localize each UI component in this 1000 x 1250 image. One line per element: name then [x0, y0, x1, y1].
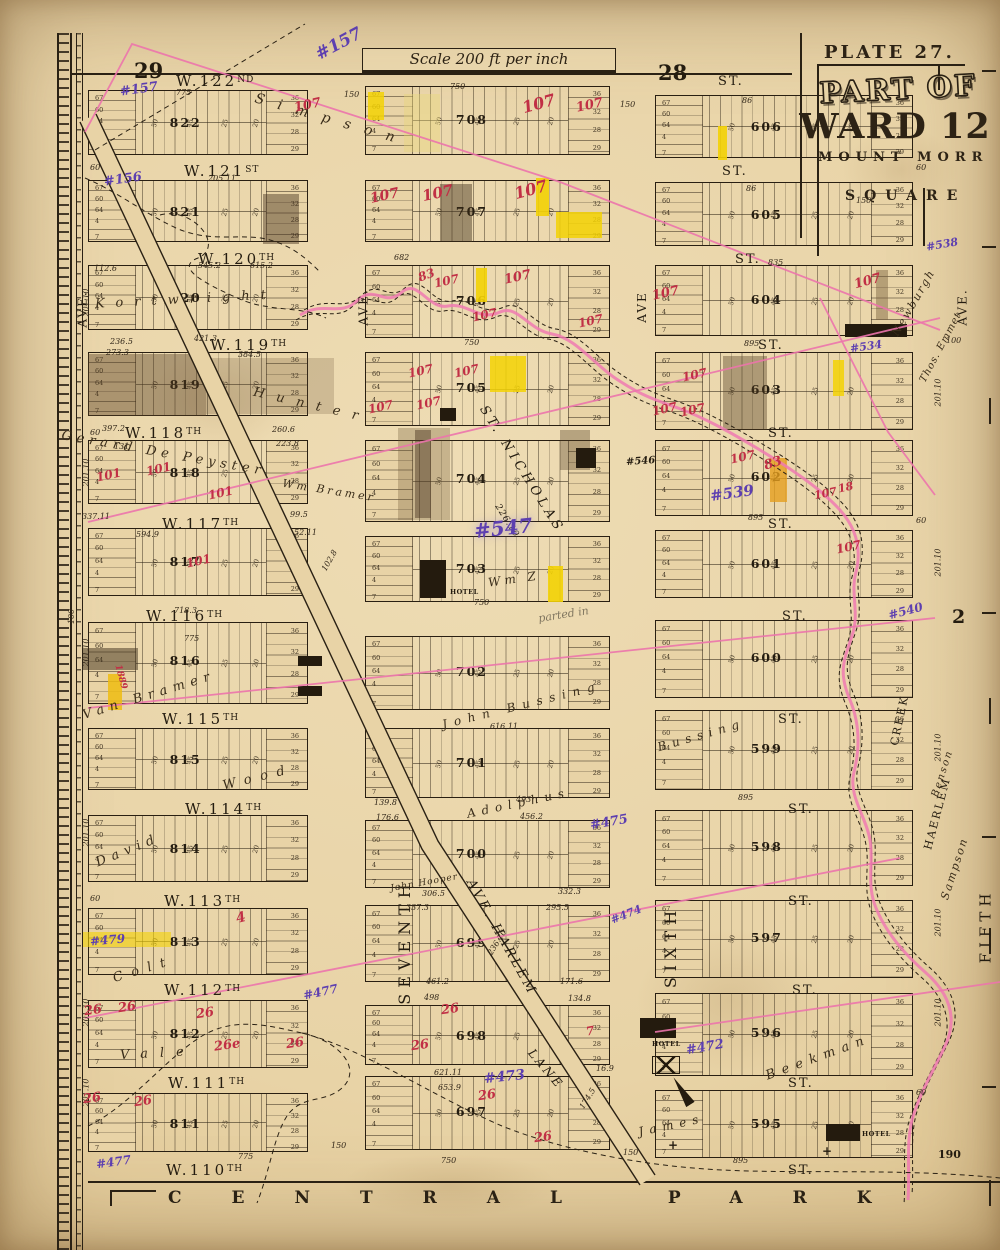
- lot-number: 64: [662, 654, 670, 661]
- smudge-patch: [723, 356, 767, 430]
- lot-number: 60: [662, 459, 670, 466]
- street-suffix: TH: [229, 1077, 245, 1087]
- block-number: 811: [170, 1116, 202, 1131]
- lot-number: 60: [372, 746, 380, 753]
- title-square: SQUARE: [845, 188, 966, 204]
- lot-number: 28: [896, 757, 904, 764]
- lot-number: 7: [372, 594, 376, 601]
- smudge-patch: [263, 194, 299, 244]
- lot-number: 67: [95, 185, 103, 192]
- paper-stain: [300, 1140, 600, 1230]
- measurement-label: 150: [331, 1141, 346, 1150]
- lot-number: 25: [221, 1119, 229, 1129]
- lot-number: 64: [662, 843, 670, 850]
- lot-number: 32: [593, 377, 601, 384]
- measurement-label: 139.8: [374, 798, 397, 807]
- lot-number: 64: [662, 122, 670, 129]
- lot-number: 29: [291, 872, 299, 879]
- lot-number: 67: [662, 716, 670, 723]
- lot-number: 29: [896, 505, 904, 512]
- measurement-label: 223.8: [276, 439, 299, 448]
- lot-number: 20: [547, 476, 555, 486]
- lot-number: 67: [662, 270, 670, 277]
- lot-number: 28: [291, 304, 299, 311]
- city-block: 603676064473632282950452520: [655, 352, 913, 430]
- lot-number: 29: [896, 967, 904, 974]
- annotation-purple: #157: [312, 23, 365, 64]
- lot-number: 29: [593, 1056, 601, 1063]
- smudge-patch: [88, 354, 206, 416]
- lot-number: 4: [662, 572, 666, 579]
- measurement-label: 150: [344, 90, 359, 99]
- lot-number: 64: [372, 1031, 380, 1038]
- measurement-label: 384.5: [238, 350, 261, 359]
- measurement-label: 615.2: [250, 261, 273, 270]
- highlight-patch: [368, 92, 384, 120]
- building-footprint: [420, 560, 446, 598]
- lot-number: 28: [896, 220, 904, 227]
- lot-number: 7: [372, 972, 376, 979]
- central-park-label: CENTRAL PARK: [168, 1188, 922, 1208]
- block-number: 814: [170, 841, 202, 856]
- annotation-purple: #474: [609, 902, 644, 926]
- lot-number: 60: [372, 284, 380, 291]
- street-suffix: TH: [225, 984, 241, 994]
- lot-number: 64: [372, 207, 380, 214]
- lot-number: 28: [291, 671, 299, 678]
- lot-number: 7: [662, 780, 666, 787]
- annotation-red: 26: [82, 1090, 102, 1107]
- block-number: 598: [751, 839, 783, 854]
- lot-number: 67: [372, 1081, 380, 1088]
- lot-number: 67: [95, 733, 103, 740]
- lot-number: 29: [593, 878, 601, 885]
- measurement-label: 60: [916, 1088, 926, 1097]
- lot-number: 20: [252, 755, 260, 765]
- lot-number: 32: [593, 931, 601, 938]
- lot-number: 25: [513, 116, 521, 126]
- lot-number: 25: [513, 207, 521, 217]
- lot-number: 50: [728, 844, 736, 854]
- lot-number: 28: [896, 855, 904, 862]
- lot-number: 64: [95, 1119, 103, 1126]
- annotation-red: 26: [440, 1001, 460, 1018]
- lot-number: 25: [221, 658, 229, 668]
- measurement-label: 682: [394, 253, 409, 262]
- lot-number: 36: [593, 1081, 601, 1088]
- lot-number: 64: [372, 297, 380, 304]
- lot-number: 36: [896, 446, 904, 453]
- lot-number: 29: [593, 415, 601, 422]
- block-number: 813: [170, 934, 202, 949]
- lot-number: 36: [896, 626, 904, 633]
- lot-number: 29: [896, 687, 904, 694]
- lot-number: 32: [593, 201, 601, 208]
- lot-number: 67: [95, 95, 103, 102]
- measurement-label: 171.6: [560, 977, 583, 986]
- highlight-patch: [833, 360, 844, 396]
- lot-number: 20: [547, 939, 555, 949]
- lot-number: 32: [291, 1113, 299, 1120]
- lot-number: 28: [593, 489, 601, 496]
- city-block: 706676064473632282950452520: [365, 265, 610, 338]
- lot-number: 50: [728, 123, 736, 133]
- lot-number: 7: [95, 147, 99, 154]
- measurement-label: 653.9: [438, 1083, 461, 1092]
- lot-number: 67: [662, 626, 670, 633]
- lot-number: 4: [372, 1121, 376, 1128]
- lot-number: 20: [547, 669, 555, 679]
- lot-number: 20: [252, 207, 260, 217]
- lot-number: 7: [372, 701, 376, 708]
- measurement-label: 176.6: [376, 813, 399, 822]
- city-block: 811676064473632282950452520: [88, 1093, 308, 1152]
- block-number: 822: [170, 115, 202, 130]
- margin-plate-number: 190: [938, 1148, 961, 1161]
- lot-number: 32: [291, 1023, 299, 1030]
- measurement-label: 201.10: [82, 289, 91, 317]
- lot-number: 64: [662, 473, 670, 480]
- city-block: 698676064473632282950452520: [365, 1005, 610, 1065]
- lot-number: 7: [95, 496, 99, 503]
- lot-number: 7: [662, 327, 666, 334]
- lot-number: 60: [372, 371, 380, 378]
- street-suffix: ND: [237, 75, 254, 85]
- street-label-st: ST.: [758, 338, 784, 353]
- lot-number: 60: [95, 1108, 103, 1115]
- lot-number: 29: [593, 971, 601, 978]
- lot-number: 64: [372, 758, 380, 765]
- lot-number: 50: [728, 1030, 736, 1040]
- measurement-label: 594.9: [136, 530, 159, 539]
- lot-number: 25: [221, 938, 229, 948]
- lot-number: 28: [291, 1128, 299, 1135]
- block-number: 821: [170, 204, 202, 219]
- measurement-label: 895: [738, 793, 753, 802]
- street-label-st: ST.: [788, 1076, 814, 1091]
- measurement-label: 99.5: [290, 510, 308, 519]
- owner-name-label: Sampson: [938, 836, 970, 902]
- city-block: 701676064473632282950452520: [365, 728, 610, 798]
- lot-number: 60: [95, 282, 103, 289]
- lot-number: 50: [151, 755, 159, 765]
- lot-number: 32: [896, 289, 904, 296]
- street-suffix: TH: [227, 1164, 243, 1174]
- annotation-red: 26: [477, 1087, 497, 1104]
- lot-number: 36: [291, 913, 299, 920]
- lot-number: 29: [291, 586, 299, 593]
- monument-mark: +: [822, 1144, 832, 1158]
- border-rule: [989, 398, 991, 424]
- lot-number: 25: [513, 850, 521, 860]
- lot-number: 20: [252, 1119, 260, 1129]
- measurement-label: 421.3: [194, 334, 217, 343]
- margin-plate-number: 28: [658, 60, 687, 85]
- measurement-label: 835: [768, 258, 783, 267]
- block-number: 815: [170, 752, 202, 767]
- border-rule: [982, 612, 996, 614]
- measurement-label: 750: [450, 82, 465, 91]
- railroad-hatch-band: [77, 33, 81, 1250]
- lot-number: 29: [291, 1144, 299, 1151]
- lot-number: 32: [896, 378, 904, 385]
- lot-number: 36: [896, 358, 904, 365]
- annotation-red: 26: [83, 1002, 103, 1019]
- lot-number: 20: [547, 850, 555, 860]
- lot-number: 4: [662, 309, 666, 316]
- lot-number: 7: [372, 512, 376, 519]
- lot-number: 4: [662, 857, 666, 864]
- lot-number: 67: [372, 733, 380, 740]
- title-ward: WARD 12: [790, 106, 1000, 147]
- lot-number: 29: [896, 1148, 904, 1155]
- lot-number: 32: [593, 843, 601, 850]
- highlight-patch: [476, 268, 487, 302]
- lot-number: 64: [95, 207, 103, 214]
- lot-number: 28: [896, 485, 904, 492]
- street-label-st: ST.: [768, 426, 794, 441]
- lot-number: 20: [547, 297, 555, 307]
- street-suffix: TH: [223, 518, 239, 528]
- measurement-label: 60: [90, 163, 100, 172]
- lot-number: 36: [593, 541, 601, 548]
- lot-number: 32: [896, 646, 904, 653]
- measurement-label: 750: [441, 1156, 456, 1165]
- lot-number: 28: [896, 398, 904, 405]
- lot-number: 50: [151, 658, 159, 668]
- building-footprint: [640, 1018, 676, 1038]
- highlight-patch: [490, 356, 526, 392]
- lot-number: 28: [896, 1130, 904, 1137]
- margin-plate-number: 2: [952, 606, 965, 628]
- lot-number: 67: [372, 825, 380, 832]
- lot-number: 36: [593, 270, 601, 277]
- lot-number: 28: [593, 575, 601, 582]
- lot-number: 4: [372, 862, 376, 869]
- lot-number: 67: [662, 535, 670, 542]
- street-label-st: ST.: [792, 983, 818, 998]
- lot-number: 7: [662, 238, 666, 245]
- lot-number: 32: [593, 751, 601, 758]
- lot-number: 25: [513, 1031, 521, 1041]
- lot-number: 28: [593, 396, 601, 403]
- lot-number: 7: [95, 587, 99, 594]
- lot-number: 25: [811, 1120, 819, 1130]
- measurement-label: 102.8: [320, 548, 339, 572]
- lot-number: 36: [896, 999, 904, 1006]
- border-rule: [989, 698, 991, 724]
- lot-number: 32: [593, 467, 601, 474]
- lot-number: 7: [372, 146, 376, 153]
- lot-number: 28: [291, 855, 299, 862]
- measurement-label: 337.11: [82, 512, 110, 521]
- lot-number: 36: [291, 733, 299, 740]
- lot-number: 36: [291, 1005, 299, 1012]
- measurement-label: 616.11: [490, 722, 518, 731]
- measurement-label: 112.6: [94, 264, 117, 273]
- lot-number: 4: [662, 759, 666, 766]
- street-label-st: ST.: [735, 252, 761, 267]
- street-label-st: ST.: [788, 894, 814, 909]
- city-block: 703676064473632282950452520: [365, 536, 610, 602]
- lot-number: 4: [95, 1042, 99, 1049]
- lot-number: 67: [662, 999, 670, 1006]
- lot-number: 7: [95, 234, 99, 241]
- margin-plate-number: 29: [134, 58, 163, 83]
- avenue-label: SIXTH: [661, 905, 680, 988]
- lot-number: 50: [728, 655, 736, 665]
- lot-number: 36: [896, 1095, 904, 1102]
- measurement-label: 306.5: [422, 889, 445, 898]
- lot-number: 4: [95, 1129, 99, 1136]
- lot-number: 25: [811, 844, 819, 854]
- block-number: 702: [456, 664, 488, 679]
- lot-number: 64: [662, 210, 670, 217]
- measurement-label: 86: [746, 184, 756, 193]
- measurement-label: 60: [90, 894, 100, 903]
- lot-number: 25: [811, 296, 819, 306]
- lot-number: 64: [372, 384, 380, 391]
- measurement-label: 52.11: [294, 528, 317, 537]
- title-subtitle: MOUNT MORR: [818, 150, 1000, 165]
- lot-number: 29: [896, 1064, 904, 1071]
- lot-number: 25: [513, 1109, 521, 1119]
- lot-number: 36: [593, 733, 601, 740]
- street-label: W.110TH: [166, 1161, 243, 1179]
- lot-number: 64: [95, 118, 103, 125]
- measurement-label: 201.10: [934, 549, 943, 577]
- lot-number: 64: [95, 844, 103, 851]
- street-label: W.112TH: [164, 981, 241, 999]
- measurement-label: 201.10: [82, 639, 91, 667]
- lot-number: 32: [291, 649, 299, 656]
- lot-number: 4: [95, 570, 99, 577]
- lot-number: 32: [896, 203, 904, 210]
- lot-number: 20: [847, 844, 855, 854]
- lot-number: 32: [593, 558, 601, 565]
- street-suffix: TH: [271, 339, 287, 349]
- lot-number: 67: [662, 1095, 670, 1102]
- building-footprint: [298, 656, 322, 666]
- annotation-purple: #475: [589, 812, 629, 833]
- block-number: 600: [751, 650, 783, 665]
- lot-number: 25: [811, 387, 819, 397]
- lot-number: 29: [291, 781, 299, 788]
- building-footprint: [826, 1124, 860, 1141]
- lot-number: 67: [662, 446, 670, 453]
- lot-number: 25: [221, 119, 229, 129]
- measurement-label: 456.2: [520, 812, 543, 821]
- lot-number: 4: [95, 130, 99, 137]
- lot-number: 67: [95, 913, 103, 920]
- block-number: 595: [751, 1116, 783, 1131]
- lot-number: 32: [291, 930, 299, 937]
- lot-number: 29: [896, 237, 904, 244]
- street-suffix: TH: [246, 803, 262, 813]
- measurement-label: 205.11: [208, 174, 236, 183]
- lot-number: 50: [435, 759, 443, 769]
- lot-number: 60: [662, 547, 670, 554]
- lot-number: 20: [252, 1030, 260, 1040]
- lot-number: 67: [662, 100, 670, 107]
- lot-number: 64: [372, 475, 380, 482]
- lot-number: 29: [291, 146, 299, 153]
- lot-number: 4: [372, 771, 376, 778]
- street-label: W.114TH: [185, 800, 262, 818]
- highlight-patch: [718, 126, 727, 160]
- lot-number: 32: [896, 1021, 904, 1028]
- lot-number: 28: [593, 1120, 601, 1127]
- lot-number: 50: [435, 939, 443, 949]
- measurement-label: 750: [474, 598, 489, 607]
- measurement-label: 498: [424, 993, 439, 1002]
- lot-number: 32: [896, 835, 904, 842]
- lot-number: 36: [291, 820, 299, 827]
- lot-number: 67: [95, 533, 103, 540]
- lot-number: 20: [547, 385, 555, 395]
- lot-number: 67: [372, 270, 380, 277]
- measurement-label: 775: [238, 1152, 253, 1161]
- lot-number: 60: [95, 545, 103, 552]
- lot-number: 4: [95, 672, 99, 679]
- lot-number: 4: [662, 221, 666, 228]
- lot-number: 20: [252, 658, 260, 668]
- street-label-st: ST.: [718, 74, 744, 89]
- lot-number: 20: [252, 119, 260, 129]
- atlas-map-sheet: 8226760644736322829504525208216760644736…: [0, 0, 1000, 1250]
- avenue-label: FIFTH: [976, 889, 994, 964]
- block-number: 697: [456, 1104, 488, 1119]
- lot-number: 7: [372, 234, 376, 241]
- measurement-label: 397.2: [102, 424, 125, 433]
- lot-number: 50: [435, 850, 443, 860]
- city-block: 600676064473632282950452520: [655, 620, 913, 698]
- hotel-label: HOTEL: [450, 588, 479, 596]
- measurement-label: 201.10: [934, 909, 943, 937]
- lot-number: 60: [662, 372, 670, 379]
- lot-number: 60: [372, 553, 380, 560]
- lot-number: 7: [662, 1149, 666, 1156]
- lot-number: 25: [811, 935, 819, 945]
- building-footprint: [440, 408, 456, 421]
- lot-number: 28: [896, 946, 904, 953]
- annotation-red: 26: [117, 999, 137, 1016]
- lot-number: 28: [593, 951, 601, 958]
- street-suffix: TH: [225, 895, 241, 905]
- border-rule: [982, 836, 996, 838]
- annotation-purple: #538: [925, 235, 959, 253]
- lot-number: 28: [593, 1041, 601, 1048]
- lot-number: 20: [847, 745, 855, 755]
- lot-number: 25: [221, 207, 229, 217]
- lot-number: 28: [896, 666, 904, 673]
- measurement-label: 150: [620, 100, 635, 109]
- highlight-patch: [404, 94, 440, 152]
- hotel-label: HOTEL: [652, 1040, 681, 1048]
- lot-number: 25: [811, 210, 819, 220]
- lot-number: 7: [662, 876, 666, 883]
- lot-number: 67: [662, 187, 670, 194]
- lot-number: 50: [728, 1120, 736, 1130]
- measurement-label: 260.6: [272, 425, 295, 434]
- lot-number: 36: [291, 1098, 299, 1105]
- lot-number: 67: [372, 641, 380, 648]
- measurement-label: 201.10: [934, 999, 943, 1027]
- measurement-label: 895: [733, 1156, 748, 1165]
- lot-number: 7: [372, 417, 376, 424]
- lot-number: 50: [728, 935, 736, 945]
- lot-number: 7: [95, 694, 99, 701]
